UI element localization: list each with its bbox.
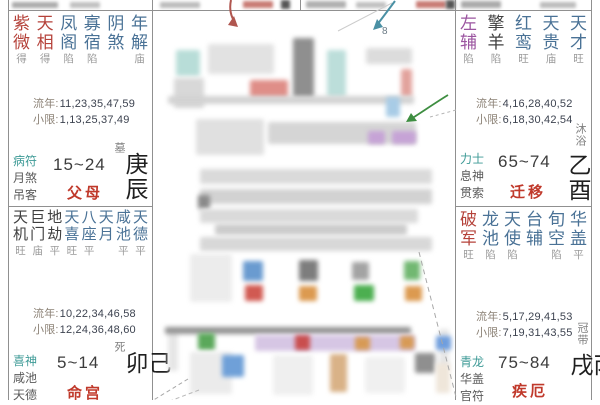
liunian-values: 4,16,28,40,52: [503, 98, 573, 110]
age-range: 15~24: [53, 155, 106, 175]
redacted-block: [245, 285, 263, 301]
redacted-block: [366, 48, 412, 64]
star-破军: 破军旺: [460, 210, 477, 262]
redacted-block: [243, 261, 263, 281]
liunian-line: 流年:11,23,35,47,59: [33, 95, 135, 111]
redacted-block: [168, 96, 414, 104]
redacted-block: [255, 335, 415, 351]
redacted-block: [368, 131, 385, 144]
liunian-label: 流年:: [476, 98, 502, 110]
clipped-text-fragment: [306, 1, 346, 8]
border-right: [591, 0, 592, 400]
gods-list: 青龙 华盖 官符: [460, 354, 484, 405]
redacted-block: [355, 337, 370, 350]
star-row: 紫微得天相得凤阁陷寡宿陷阴煞年解庙: [9, 11, 152, 66]
redacted-block: [352, 262, 369, 280]
god-name: 天德: [13, 387, 37, 404]
xiaoxian-label: 小限:: [33, 324, 59, 336]
god-name: 青龙: [460, 354, 484, 371]
star-旬空: 旬空陷: [548, 210, 565, 262]
stem-branch: 乙酉: [566, 153, 589, 203]
redacted-block: [386, 97, 400, 117]
life-stage: 冠带: [576, 322, 587, 346]
xiaoxian-line: 小限:1,13,25,37,49: [33, 111, 130, 127]
palace-parents[interactable]: 紫微得天相得凤阁陷寡宿陷阴煞年解庙 流年:11,23,35,47,59 小限:1…: [9, 11, 152, 206]
clipped-text-fragment: [446, 0, 455, 9]
redacted-block: [354, 285, 374, 301]
redacted-block: [330, 354, 347, 392]
star-row: 破军旺龙池陷天使陷台辅旬空陷华盖平: [456, 207, 591, 262]
xiaoxian-label: 小限:: [476, 114, 502, 126]
redacted-block: [365, 357, 405, 393]
age-range: 75~84: [498, 353, 551, 373]
redacted-block: [405, 286, 422, 301]
palace-name: 父母: [67, 182, 103, 203]
xiaoxian-values: 7,19,31,43,55: [503, 327, 573, 339]
star-天才: 天才旺: [570, 14, 587, 66]
star-华盖: 华盖平: [570, 210, 587, 262]
liunian-values: 5,17,29,41,53: [503, 311, 573, 323]
star-红鸾: 红鸾旺: [515, 14, 532, 66]
redacted-block: [176, 50, 200, 76]
palace-health[interactable]: 破军旺龙池陷天使陷台辅旬空陷华盖平 流年:5,17,29,41,53 小限:7,…: [456, 207, 591, 400]
god-name: 喜神: [13, 353, 37, 370]
redacted-block: [168, 331, 178, 371]
god-name: 月煞: [13, 170, 37, 187]
redacted-block: [222, 355, 244, 377]
clipped-text-fragment: [12, 2, 58, 8]
star-天德: 天德平: [133, 210, 148, 258]
xiaoxian-values: 1,13,25,37,49: [60, 114, 130, 126]
star-row: 天机旺巨门庙地劫平天喜旺八座平天月咸池平天德平: [9, 207, 152, 258]
star-巨门: 巨门庙: [30, 210, 45, 258]
redacted-block: [392, 131, 416, 144]
age-range: 65~74: [498, 152, 551, 172]
star-八座: 八座平: [82, 210, 97, 258]
clipped-text-fragment: [416, 1, 446, 8]
life-stage: 沐浴: [574, 123, 585, 147]
xiaoxian-values: 12,24,36,48,60: [60, 324, 136, 336]
clipped-text-fragment: [461, 1, 501, 8]
redacted-block: [295, 335, 310, 350]
clipped-text-fragment: [243, 1, 273, 8]
star-天使: 天使陷: [504, 210, 521, 262]
redacted-block: [200, 169, 432, 184]
gods-list: 力士 息神 贯索: [460, 151, 484, 202]
star-咸池: 咸池平: [116, 210, 131, 258]
star-凤阁: 凤阁陷: [60, 14, 77, 66]
xiaoxian-values: 6,18,30,42,54: [503, 114, 573, 126]
redacted-block: [200, 189, 432, 204]
xiaoxian-line: 小限:6,18,30,42,54: [476, 111, 573, 127]
xiaoxian-line: 小限:7,19,31,43,55: [476, 324, 573, 340]
god-name: 华盖: [460, 371, 484, 388]
stem-branch: 庚辰: [123, 152, 146, 202]
redacted-block: [436, 336, 451, 350]
redacted-block: [215, 224, 407, 235]
star-龙池: 龙池陷: [482, 210, 499, 262]
liunian-line: 流年:4,16,28,40,52: [476, 95, 573, 111]
redacted-block: [198, 195, 210, 209]
redacted-block: [436, 363, 450, 393]
redacted-block: [198, 333, 215, 350]
small-digit-annotation: 8: [382, 26, 388, 37]
star-天相: 天相得: [37, 14, 54, 66]
liunian-line: 流年:5,17,29,41,53: [476, 308, 573, 324]
clipped-text-fragment: [281, 0, 290, 9]
border-top-divider: [300, 0, 301, 10]
liunian-label: 流年:: [33, 308, 59, 320]
xiaoxian-label: 小限:: [476, 327, 502, 339]
star-擎羊: 擎羊陷: [488, 14, 505, 66]
liunian-values: 11,23,35,47,59: [60, 98, 135, 110]
star-年解: 年解庙: [131, 14, 148, 66]
redacted-block: [190, 254, 232, 302]
redacted-block: [273, 355, 313, 395]
redacted-block: [400, 336, 414, 349]
god-name: 吊客: [13, 187, 37, 204]
god-name: 力士: [460, 151, 484, 168]
redacted-block: [196, 119, 264, 155]
redacted-block: [293, 38, 314, 98]
liunian-label: 流年:: [33, 98, 59, 110]
palace-travel[interactable]: 左辅陷擎羊陷红鸾旺天贵庙天才旺 流年:4,16,28,40,52 小限:6,18…: [456, 11, 591, 206]
age-range: 5~14: [57, 353, 99, 373]
redacted-block: [404, 261, 420, 280]
star-紫微: 紫微得: [13, 14, 30, 66]
star-台辅: 台辅: [526, 210, 543, 262]
god-name: 病符: [13, 153, 37, 170]
redacted-center-content: [153, 11, 455, 400]
clipped-text-fragment: [70, 2, 100, 8]
redacted-block: [208, 44, 274, 74]
clipped-text-fragment: [160, 2, 200, 8]
redacted-block: [299, 286, 317, 301]
clipped-text-fragment: [356, 2, 386, 8]
stem-branch: 丙戌: [568, 353, 600, 400]
star-左辅: 左辅陷: [460, 14, 477, 66]
star-row: 左辅陷擎羊陷红鸾旺天贵庙天才旺: [456, 11, 591, 66]
gods-list: 病符 月煞 吊客: [13, 153, 37, 204]
liunian-line: 流年:10,22,34,46,58: [33, 305, 136, 321]
liunian-label: 流年:: [476, 311, 502, 323]
god-name: 官符: [460, 388, 484, 405]
gods-list: 喜神 咸池 天德: [13, 353, 37, 404]
god-name: 贯索: [460, 185, 484, 202]
clipped-text-fragment: [540, 2, 576, 8]
god-name: 咸池: [13, 370, 37, 387]
star-寡宿: 寡宿陷: [84, 14, 101, 66]
palace-name: 迁移: [510, 181, 546, 202]
redacted-block: [200, 237, 432, 251]
redacted-block: [327, 50, 346, 97]
palace-life[interactable]: 天机旺巨门庙地劫平天喜旺八座平天月咸池平天德平 流年:10,22,34,46,5…: [9, 207, 152, 400]
redacted-block: [200, 209, 418, 223]
redacted-block: [401, 69, 412, 97]
star-天机: 天机旺: [13, 210, 28, 258]
star-天月: 天月: [99, 210, 114, 258]
liunian-values: 10,22,34,46,58: [60, 308, 136, 320]
star-地劫: 地劫平: [47, 210, 62, 258]
xiaoxian-line: 小限:12,24,36,48,60: [33, 321, 136, 337]
xiaoxian-label: 小限:: [33, 114, 59, 126]
star-天贵: 天贵庙: [543, 14, 560, 66]
redacted-block: [299, 260, 318, 281]
redacted-block: [415, 353, 435, 373]
star-天喜: 天喜旺: [64, 210, 79, 258]
god-name: 息神: [460, 168, 484, 185]
ziwei-chart-screenshot: { "palaces": [ { "name": "父母", "stars": …: [0, 0, 600, 400]
star-阴煞: 阴煞: [107, 14, 124, 66]
palace-name: 疾厄: [512, 380, 548, 401]
